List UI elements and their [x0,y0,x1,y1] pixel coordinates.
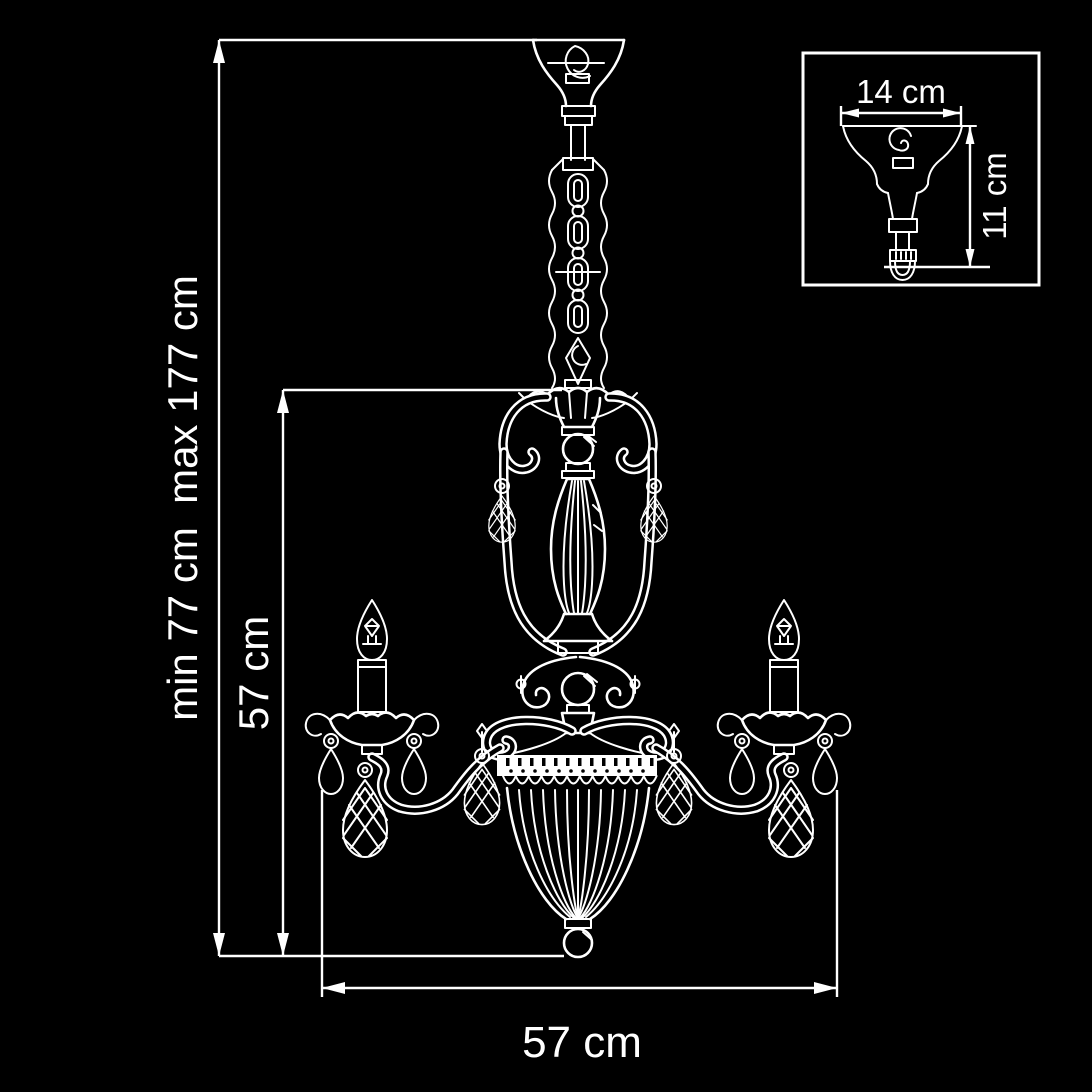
diagram-canvas: min 77 cm max 177 cm 57 cm 57 cm [0,0,1092,1092]
candle-left [306,600,439,857]
candle-bulb [357,600,387,712]
canopy-width-label: 14 cm [856,73,946,110]
sphere-lower [562,673,594,705]
overall-height-label: min 77 cm max 177 cm [159,275,206,721]
candle-bulb [769,600,799,712]
fluted-vase [544,479,612,653]
chain-column [549,125,607,388]
canopy-height-dimension [884,126,990,267]
glass-drop [730,749,754,794]
ceiling-canopy [533,40,624,125]
canopy-detail-inset: 14 cm 11 c [803,53,1039,285]
finial-ball [564,929,592,957]
glass-drop [813,749,837,794]
fixture-height-label: 57 cm [230,616,277,730]
hook-detail [889,128,911,151]
chandelier-dimension-drawing: min 77 cm max 177 cm 57 cm 57 cm [0,0,1092,1092]
chandelier-drawing [306,40,851,957]
glass-drop [319,749,343,794]
glass-drop [402,749,426,794]
fixture-height-dimension: 57 cm [230,390,562,956]
sphere-upper [563,434,593,464]
candle-right [718,600,851,857]
canopy-drop-label: 11 cm [976,152,1013,239]
fixture-width-label: 57 cm [522,1018,642,1067]
canopy-detail-drawing [843,126,976,280]
scroll-ornaments [503,657,653,755]
beaded-ribbed-bowl [497,755,657,957]
